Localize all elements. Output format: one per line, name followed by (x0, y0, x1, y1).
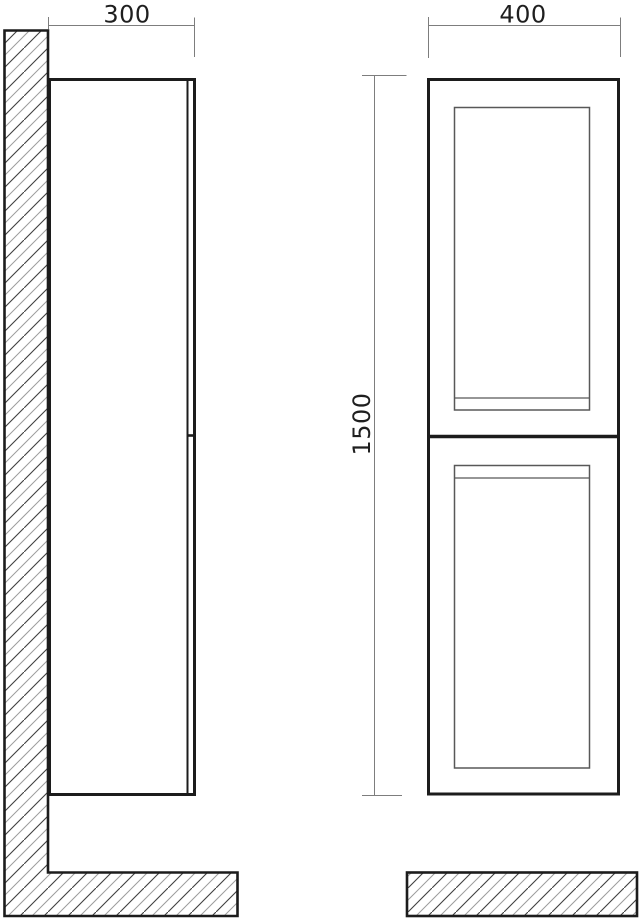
front-view (427, 80, 620, 795)
cabinet-technical-drawing: 300 400 1500 (0, 0, 640, 919)
width-dimension-label: 400 (499, 1, 546, 29)
floor-right-section (407, 873, 637, 917)
height-dimension-label: 1500 (348, 392, 376, 455)
side-view (50, 79, 197, 795)
depth-dimension-label: 300 (103, 1, 150, 29)
side-view-outline (50, 80, 195, 795)
